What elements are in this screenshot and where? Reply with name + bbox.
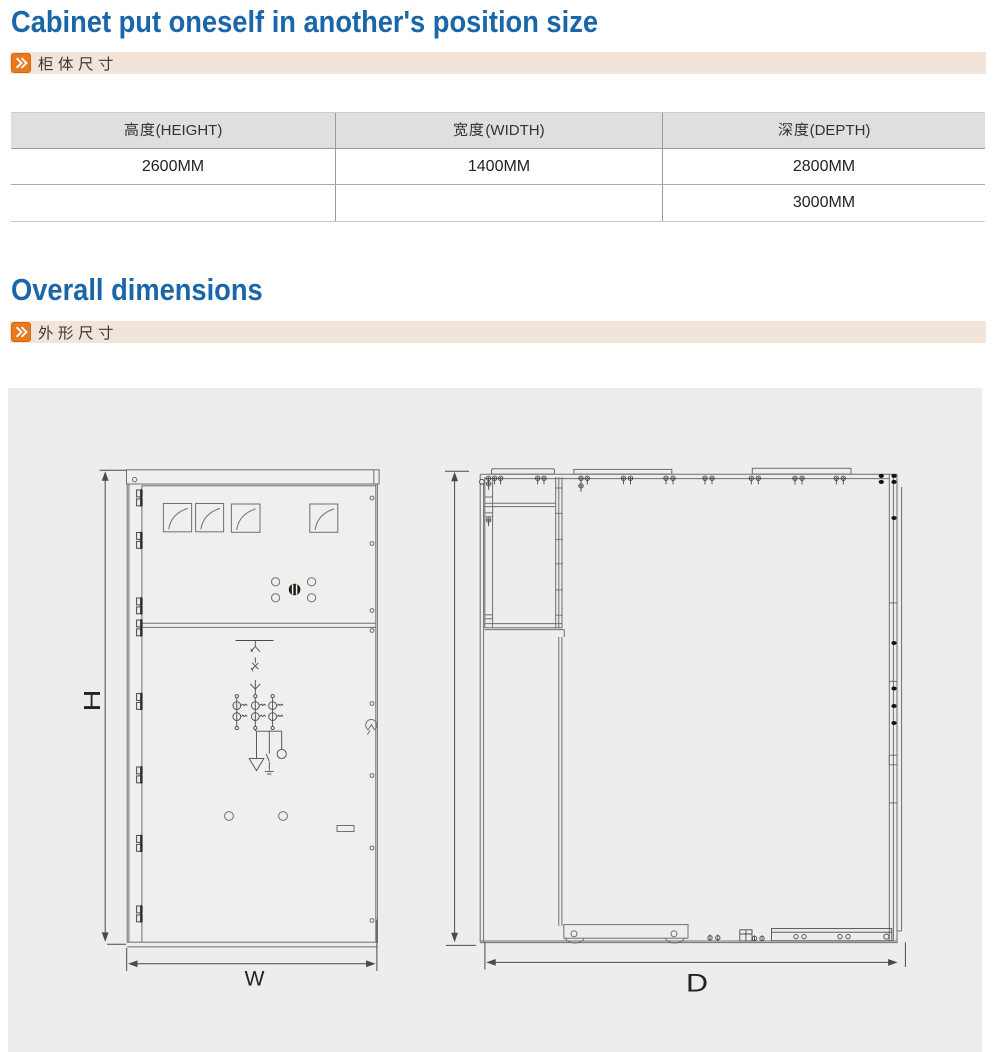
svg-text:D: D xyxy=(686,969,708,997)
svg-text:W: W xyxy=(245,968,265,991)
svg-text:H: H xyxy=(80,690,106,712)
